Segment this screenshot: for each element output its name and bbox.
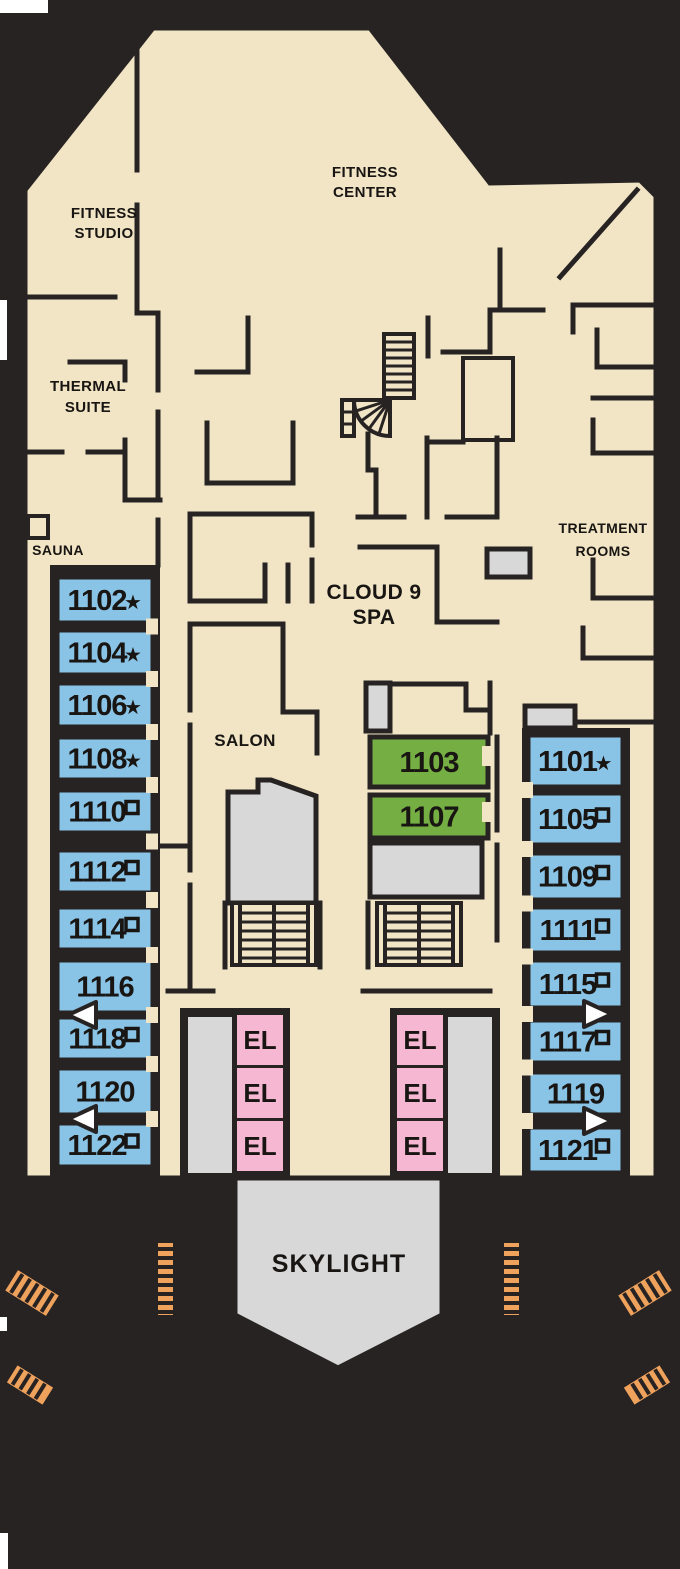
cabin-1104[interactable]: 1104★	[57, 630, 153, 675]
elevator-1: EL	[237, 1015, 283, 1065]
cabin-number: 1108	[68, 744, 128, 776]
deck-plan-page: 1102★1104★1106★1108★11101112111411161118…	[0, 0, 680, 1569]
elevator-bank: ELELEL	[180, 1008, 290, 1180]
cabin-1110[interactable]: 1110	[57, 790, 153, 833]
cabin-number: 1105	[538, 804, 598, 836]
elevator-label: EL	[243, 1025, 276, 1055]
thermal-suite-label-line1: THERMAL	[50, 378, 126, 395]
elevator-lobby	[448, 1017, 492, 1173]
cabin-number: 1109	[538, 862, 598, 894]
cabin-1108[interactable]: 1108★	[57, 737, 153, 780]
door-opening	[146, 892, 158, 908]
cabin-1109[interactable]: 1109	[528, 853, 623, 900]
cabin-number: 1116	[76, 972, 134, 1004]
center-service-strip	[366, 683, 390, 731]
door-opening	[521, 1060, 533, 1076]
cabin-number: 1103	[400, 747, 460, 779]
cabin-1103[interactable]: 1103	[370, 737, 488, 787]
fitness-center-label-line2: CENTER	[333, 184, 397, 201]
sauna-box	[28, 516, 48, 538]
elevator-label: EL	[403, 1025, 436, 1055]
treatment-service-box	[487, 549, 530, 577]
cabin-number: 1112	[68, 857, 125, 889]
door-opening	[146, 777, 158, 793]
cabin-1122[interactable]: 1122	[57, 1123, 153, 1167]
cabin-1115[interactable]: 1115	[528, 960, 623, 1008]
door-opening	[521, 896, 533, 912]
elevator-lobby	[188, 1017, 232, 1173]
treatment-rooms-label-line2: ROOMS	[576, 543, 631, 559]
door-opening	[146, 724, 158, 740]
stairway	[232, 903, 316, 965]
door-opening	[482, 802, 494, 822]
door-opening	[146, 1007, 158, 1023]
cabin-number: 1104	[68, 638, 128, 670]
door-opening	[146, 1056, 158, 1072]
center-stair-landing	[370, 843, 482, 897]
fitness-center-label-line1: FITNESS	[332, 164, 398, 181]
door-opening	[521, 949, 533, 965]
cabin-number: 1101	[538, 746, 598, 778]
cabin-1118[interactable]: 1118	[57, 1017, 153, 1060]
door-opening	[521, 1006, 533, 1022]
cabin-1106[interactable]: 1106★	[57, 683, 153, 727]
cabin-number: 1121	[538, 1135, 598, 1167]
cabin-1101[interactable]: 1101★	[528, 735, 623, 787]
cabin-number: 1119	[547, 1079, 605, 1111]
cabin-1121[interactable]: 1121	[528, 1127, 623, 1173]
skylight-label: SKYLIGHT	[272, 1250, 406, 1278]
door-opening	[482, 746, 494, 766]
sauna-label: SAUNA	[32, 542, 84, 558]
door-opening	[521, 1113, 533, 1129]
deck-ladder	[501, 1243, 522, 1315]
cabin-number: 1120	[76, 1077, 135, 1109]
salon-label: SALON	[214, 731, 276, 750]
cabin-number: 1115	[539, 969, 597, 1001]
star-symbol: ★	[595, 751, 613, 775]
cabin-number: 1102	[68, 585, 127, 617]
cloud9-spa-label-line2: SPA	[353, 606, 396, 629]
stairway	[377, 903, 461, 965]
elevator-4: EL	[397, 1015, 443, 1065]
cabin-number: 1107	[400, 802, 459, 834]
elevator-label: EL	[243, 1078, 276, 1108]
cabin-1102[interactable]: 1102★	[57, 577, 153, 623]
cabin-1120[interactable]: 1120	[57, 1068, 153, 1115]
cabin-1112[interactable]: 1112	[57, 850, 153, 893]
elevator-label: EL	[403, 1131, 436, 1161]
cabin-1119[interactable]: 1119	[528, 1072, 623, 1115]
star-symbol: ★	[124, 643, 142, 667]
cabin-number: 1111	[540, 915, 597, 947]
thermal-suite-label-line2: SUITE	[65, 399, 111, 416]
fitness-studio-label-line1: FITNESS	[71, 205, 137, 222]
cabin-1116[interactable]: 1116	[57, 960, 153, 1013]
cabin-1114[interactable]: 1114	[57, 907, 153, 950]
cabin-1111[interactable]: 1111	[528, 907, 623, 953]
elevator-2: EL	[237, 1068, 283, 1118]
door-opening	[521, 782, 533, 798]
elevator-3: EL	[237, 1121, 283, 1171]
door-opening	[521, 841, 533, 857]
cabin-number: 1114	[68, 914, 126, 946]
cabin-number: 1110	[68, 797, 125, 829]
salon-stair-landing	[228, 780, 316, 903]
cabin-number: 1106	[68, 690, 128, 722]
elevator-5: EL	[397, 1068, 443, 1118]
cloud9-spa-label-line1: CLOUD 9	[327, 581, 422, 604]
door-opening	[146, 671, 158, 687]
cabin-1105[interactable]: 1105	[528, 793, 623, 845]
star-symbol: ★	[124, 590, 142, 614]
elevator-bank: ELELEL	[390, 1008, 500, 1180]
cabin-1117[interactable]: 1117	[528, 1020, 623, 1063]
deck-plan-svg: 1102★1104★1106★1108★11101112111411161118…	[0, 0, 680, 1569]
door-opening	[146, 834, 158, 850]
elevator-6: EL	[397, 1121, 443, 1171]
cabin-number: 1117	[539, 1027, 596, 1059]
door-opening	[146, 947, 158, 963]
deck-ladder	[155, 1243, 176, 1315]
cabin-number: 1122	[68, 1130, 127, 1162]
door-opening	[146, 1111, 158, 1127]
star-symbol: ★	[124, 695, 142, 719]
cabin-1107[interactable]: 1107	[370, 795, 488, 838]
treatment-rooms-label-line1: TREATMENT	[559, 520, 648, 536]
fitness-studio-label-line2: STUDIO	[74, 225, 133, 242]
elevator-label: EL	[243, 1131, 276, 1161]
elevator-label: EL	[403, 1078, 436, 1108]
starboard-service-box	[525, 706, 575, 728]
door-opening	[146, 619, 158, 635]
star-symbol: ★	[124, 749, 142, 773]
